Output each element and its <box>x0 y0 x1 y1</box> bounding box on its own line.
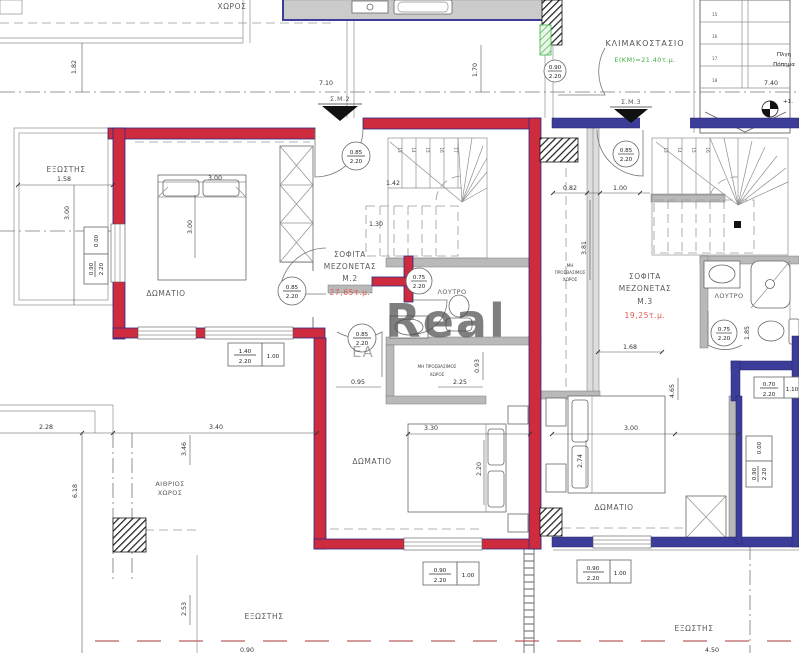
label-m2-2: ΜΕΖΟΝΕΤΑΣ <box>324 262 376 271</box>
dim-300-balcony: 3.00 <box>64 206 71 220</box>
label-balcony-left: ΕΞΩΣΤΗΣ <box>46 165 85 174</box>
door-tag-bottom: 2.20 <box>549 74 562 80</box>
dim-142: 1.42 <box>386 180 400 187</box>
box-top: 0.90 <box>89 262 95 275</box>
door-box-b6: 0.70 2.20 1.10 <box>754 377 799 398</box>
box-top: 0.90 <box>434 568 447 574</box>
dim-bed3-w: 3.00 <box>624 425 638 432</box>
door-tag-bottom: 2.20 <box>413 284 426 290</box>
dim-bed1-h: 3.00 <box>187 220 194 234</box>
label-bath-m3: ΛΟΥΤΡΟ <box>715 292 744 300</box>
label-closet-1: ΜΗ ΠΡΟΣΒΑΣΙΜΟΣ <box>418 364 457 369</box>
step-number: 13 <box>663 147 668 153</box>
dim-093: 0.93 <box>474 359 481 373</box>
box-bottom: 2.20 <box>763 392 776 398</box>
door-tag-bottom: 2.20 <box>350 159 363 165</box>
dim-381: 3.81 <box>581 241 588 255</box>
label-top-partial: ΧΩΡΟΣ <box>217 2 246 11</box>
bed-upper-m2 <box>158 175 246 280</box>
label-m3-area: 19,25τ.μ. <box>625 311 666 320</box>
door-tag-bottom: 2.20 <box>620 157 633 163</box>
label-m3-1: ΣΟΦΙΤΑ <box>629 272 661 281</box>
dim-185: 1.85 <box>744 326 751 340</box>
door-tag-bottom: 2.20 <box>286 294 299 300</box>
label-shaft-2: ΠΡΟΣΒΑΣΙΜΟΣ <box>555 270 586 275</box>
step-number: 14 <box>677 147 682 153</box>
box-side: 1.10 <box>786 387 799 393</box>
dim-740: 7.40 <box>764 80 778 87</box>
window-mid-a <box>138 327 196 339</box>
box-top: 0.90 <box>752 467 758 480</box>
label-bedroom-m2-lower: ΔΩΜΑΤΙΟ <box>352 457 391 466</box>
label-m3-3: Μ.3 <box>637 297 652 306</box>
door-tag-c5: 0.85 2.20 <box>613 141 639 167</box>
dim-253: 2.53 <box>181 602 188 616</box>
step-number: 16 <box>705 147 710 153</box>
dim-225: 2.25 <box>453 379 467 386</box>
door-tag-top: 0.85 <box>350 150 363 156</box>
box-zero: 0.00 <box>757 441 763 454</box>
sink-top <box>352 1 388 13</box>
door-tag-top: 0.90 <box>549 65 562 71</box>
level-benchmark: +1. <box>762 99 793 117</box>
label-bedroom-m3: ΔΩΜΑΤΙΟ <box>594 503 633 512</box>
box-bottom: 2.20 <box>99 262 105 275</box>
door-tag-c2: 0.85 2.20 <box>278 277 306 305</box>
label-m2-3: Μ.2 <box>342 274 357 283</box>
section-marker-sm2: Σ.Μ.2 <box>318 95 362 121</box>
staircase-m2: 13 14 15 16 17 <box>366 138 487 258</box>
label-balcony-bottom-right: ΕΞΩΣΤΗΣ <box>674 624 713 633</box>
label-m3-2: ΜΕΖΟΝΕΤΑΣ <box>619 284 671 293</box>
wardrobe-m3 <box>686 496 726 538</box>
wardrobe-m2 <box>280 146 313 262</box>
dim-340: 3.40 <box>209 424 223 431</box>
door-tag-c7: 0.90 2.20 <box>544 60 566 82</box>
watermark-main: Real <box>385 294 506 348</box>
label-m2-area: 27,65τ.μ. <box>330 288 371 297</box>
label-stairwell-area: Ε(ΚΜ)=21.40τ.μ. <box>614 56 675 64</box>
step-number: 14 <box>411 147 416 153</box>
floor-plan-svg: 13 14 15 16 17 13 14 15 16 15 16 17 18 <box>0 0 799 653</box>
label-stairwell: ΚΛΙΜΑΚΟΣΤΑΣΙΟ <box>605 39 684 48</box>
bathtub-top <box>394 0 452 14</box>
door-tag-top: 0.75 <box>413 275 426 281</box>
step-number: 17 <box>712 56 718 61</box>
window-left <box>111 224 125 282</box>
door-tag-top: 0.85 <box>286 285 299 291</box>
box-bottom: 2.20 <box>762 467 768 480</box>
door-tag-c6: 0.75 2.20 <box>711 320 737 346</box>
door-box-b2: 0.90 2.20 1.00 <box>423 562 479 585</box>
box-bottom: 2.20 <box>434 578 447 584</box>
door-tag-top: 0.85 <box>356 332 369 338</box>
dim-082: 0.82 <box>563 185 577 192</box>
dim-100: 1.00 <box>613 185 627 192</box>
box-top: 1.40 <box>239 349 252 355</box>
step-number: 15 <box>425 147 430 153</box>
door-tag-c1: 0.85 2.20 <box>342 142 370 170</box>
box-bottom: 2.20 <box>587 576 600 582</box>
box-top: 0.70 <box>763 382 776 388</box>
door-tag-bottom: 2.20 <box>718 336 731 342</box>
step-number: 17 <box>453 147 458 153</box>
label-atrium-1: ΑΙΘΡΙΟΣ <box>155 480 184 488</box>
level-value: +1. <box>783 99 793 105</box>
dim-465: 4.65 <box>669 384 676 398</box>
step-number: 15 <box>691 147 696 153</box>
dim-228: 2.28 <box>39 424 53 431</box>
label-bedroom-m2-upper: ΔΩΜΑΤΙΟ <box>146 289 185 298</box>
box-top: 0.90 <box>587 566 600 572</box>
door-box-b3: 0.90 2.20 1.00 <box>577 560 631 583</box>
window-mid-b <box>205 327 293 339</box>
label-note-1: Πλγη <box>777 52 792 58</box>
dim-330: 3.30 <box>424 425 438 432</box>
dim-710: 7.10 <box>319 80 333 87</box>
box-bottom: 2.20 <box>239 359 252 365</box>
dim-130: 1.30 <box>369 221 383 228</box>
box-zero: 0.00 <box>94 234 100 247</box>
door-tag-c3: 0.75 2.20 <box>406 268 432 294</box>
dim-bottom-left: 0.90 <box>240 647 254 653</box>
dim-158: 1.58 <box>57 176 71 183</box>
shower <box>751 261 790 308</box>
label-m2-1: ΣΟΦΙΤΑ <box>334 250 366 259</box>
label-balcony-bottom: ΕΞΩΣΤΗΣ <box>244 612 283 621</box>
dim-274: 2.74 <box>577 454 584 468</box>
door-box-b1: 1.40 2.20 1.00 <box>228 343 284 366</box>
step-number: 18 <box>712 78 718 83</box>
green-shaft <box>540 25 551 55</box>
dim-182: 1.82 <box>71 60 78 74</box>
step-number: 16 <box>712 34 718 39</box>
door-tag-top: 0.85 <box>620 148 633 154</box>
floor-plan-page: 13 14 15 16 17 13 14 15 16 15 16 17 18 <box>0 0 799 653</box>
door-box-b5: 0.00 0.90 2.20 <box>746 436 772 487</box>
dim-346: 3.46 <box>181 442 188 456</box>
watermark-sub: EA <box>352 343 374 361</box>
dim-170: 1.70 <box>472 63 479 77</box>
dim-168: 1.68 <box>623 344 637 351</box>
step-number: 15 <box>712 12 718 17</box>
door-tag-top: 0.75 <box>718 327 731 333</box>
marker-label: Σ.Μ.2 <box>330 95 350 103</box>
step-number: 16 <box>439 147 444 153</box>
window-bottom-m3 <box>593 536 651 548</box>
label-shaft-3: ΧΩΡΟΣ <box>563 277 578 282</box>
step-number: 13 <box>397 147 402 153</box>
label-shaft-1: ΜΗ <box>567 263 574 268</box>
top-bathroom-partial <box>283 0 545 20</box>
label-atrium-2: ΧΩΡΟΣ <box>158 489 183 497</box>
box-side: 1.00 <box>614 571 627 577</box>
window-bottom-m2 <box>404 538 482 550</box>
box-side: 1.00 <box>462 573 475 579</box>
label-note-2: Πόπημα <box>773 61 795 68</box>
ladder <box>524 548 534 653</box>
sink <box>704 261 740 288</box>
dim-220: 2.20 <box>476 462 483 476</box>
watermark: Real EA <box>352 294 507 361</box>
dim-bottom-right: 4.50 <box>705 647 719 653</box>
door-box-b4: 0.00 0.90 2.20 <box>84 227 108 284</box>
marker-label: Σ.Μ.3 <box>621 98 641 106</box>
dim-618: 6.18 <box>72 484 79 498</box>
bed-m3 <box>546 396 665 493</box>
box-side: 1.00 <box>267 354 280 360</box>
dim-095: 0.95 <box>351 379 365 386</box>
label-closet-2: ΧΩΡΟΣ <box>430 372 445 377</box>
dim-bed1-w: 3.00 <box>208 175 222 182</box>
